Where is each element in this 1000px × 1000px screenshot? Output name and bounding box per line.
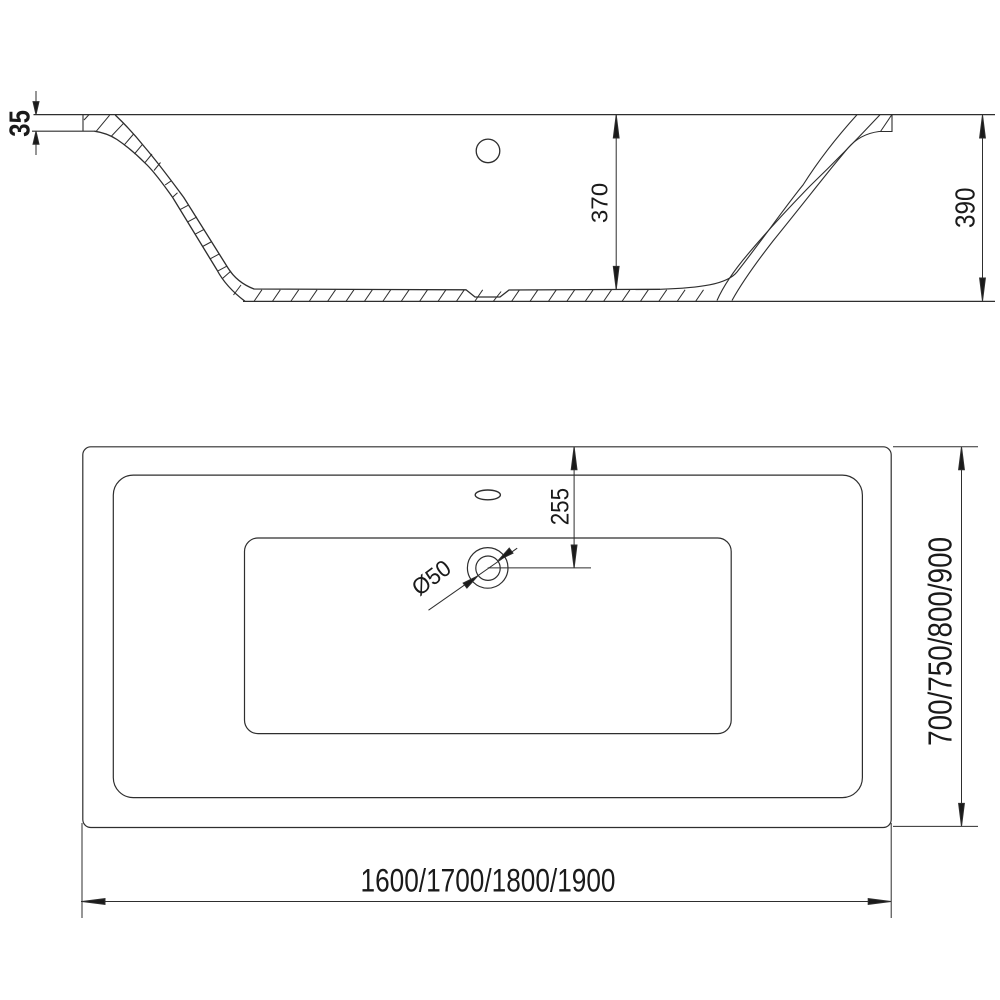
svg-text:255: 255 <box>547 488 575 525</box>
svg-text:35: 35 <box>4 110 36 137</box>
svg-text:1600/1700/1800/1900: 1600/1700/1800/1900 <box>361 863 616 899</box>
svg-text:370: 370 <box>586 183 612 223</box>
svg-text:390: 390 <box>949 187 980 228</box>
svg-text:Ø50: Ø50 <box>407 555 456 601</box>
svg-text:700/750/800/900: 700/750/800/900 <box>922 537 959 746</box>
